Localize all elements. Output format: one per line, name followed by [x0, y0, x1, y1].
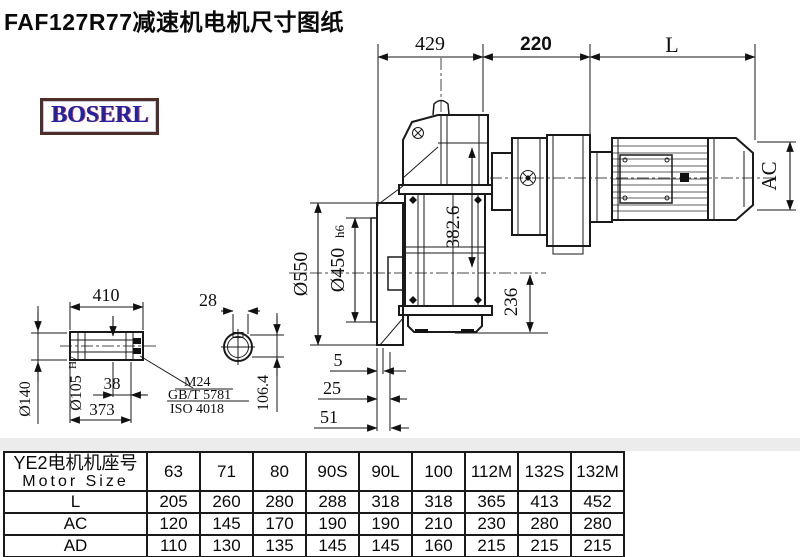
table-cell: 145 [200, 513, 253, 535]
dim-382-label: 382.6 [443, 206, 464, 249]
dim-373-label: 373 [89, 400, 115, 419]
dim-L-label: L [665, 32, 678, 57]
header-line-cn: YE2电机机座号 [5, 453, 146, 473]
brand-logo: BOSERL [40, 98, 159, 135]
dim-140-label: Ø140 [17, 381, 34, 417]
page-title: FAF127R77减速机电机尺寸图纸 [4, 3, 344, 37]
table-cell: 205 [147, 491, 200, 513]
bolt-spec-line3: ISO 4018 [170, 402, 224, 417]
motor-outline [612, 138, 753, 220]
dim-220-label: 220 [520, 34, 552, 55]
dim-450-label: Ø450 [327, 248, 349, 292]
table-cell: 120 [147, 513, 200, 535]
dim-105-label: Ø105 [68, 375, 85, 411]
row-label: AC [4, 513, 147, 535]
header-line-en: Motor Size [5, 473, 146, 490]
flange-dimensions: Ø550 Ø450 h6 [290, 203, 378, 345]
table-cell: 280 [571, 513, 624, 535]
drawing-page: 429 220 L [0, 0, 800, 557]
table-cell: 413 [518, 491, 571, 513]
table-cell: 260 [200, 491, 253, 513]
table-header-cell: 71 [200, 452, 253, 491]
table-cell: 190 [359, 513, 412, 535]
table-cell: 135 [253, 535, 306, 557]
table-cell: 145 [306, 535, 359, 557]
table-cell: 160 [412, 535, 465, 557]
dim-106-label: 106.4 [255, 375, 272, 411]
bolt-spec-line2: GB/T 5781 [168, 388, 231, 403]
table-cell: 145 [359, 535, 412, 557]
dim-5-label: 5 [334, 350, 343, 370]
table-cell: 215 [465, 535, 518, 557]
centerlines [60, 58, 774, 346]
table-cell: 170 [253, 513, 306, 535]
table-header-cell: 80 [253, 452, 306, 491]
table-cell: 215 [571, 535, 624, 557]
dim-410-label: 410 [93, 285, 120, 305]
table-row: L 205 260 280 288 318 318 365 413 452 [4, 491, 624, 513]
input-stage [492, 135, 612, 254]
table-cell: 365 [465, 491, 518, 513]
dim-550-label: Ø550 [290, 252, 312, 296]
table-header-cell: 90L [359, 452, 412, 491]
table-cell: 190 [306, 513, 359, 535]
dim-450-suffix: h6 [332, 225, 347, 239]
table-header-cell: 100 [412, 452, 465, 491]
table-cell: 452 [571, 491, 624, 513]
table-header-row: YE2电机机座号 Motor Size 63 71 80 90S 90L 100… [4, 452, 624, 491]
dim-AC-label: AC [757, 161, 781, 190]
table-cell: 110 [147, 535, 200, 557]
table-header-cell: 132S [518, 452, 571, 491]
motor-size-table: YE2电机机座号 Motor Size 63 71 80 90S 90L 100… [3, 451, 625, 557]
table-header-cell: 132M [571, 452, 624, 491]
divider-band [0, 438, 800, 451]
ac-dimension: AC [757, 142, 796, 210]
table-row: AD 110 130 135 145 145 160 215 215 215 [4, 535, 624, 557]
table-header-cell: 90S [306, 452, 359, 491]
table-cell: 280 [518, 513, 571, 535]
dim-38-label: 38 [104, 374, 121, 393]
dim-28-label: 28 [199, 290, 217, 310]
table-cell: 230 [465, 513, 518, 535]
dim-236-label: 236 [501, 288, 522, 317]
gearbox-side-view [371, 101, 492, 346]
dim-105-sup: H7 [67, 355, 79, 369]
table-header-cell: 63 [147, 452, 200, 491]
table-cell: 318 [412, 491, 465, 513]
top-dimensions: 429 220 L [378, 32, 755, 206]
table-cell: 130 [200, 535, 253, 557]
table-header-cell: YE2电机机座号 Motor Size [4, 452, 147, 491]
brand-logo-text: BOSERL [43, 101, 156, 132]
dim-25-label: 25 [323, 378, 341, 398]
motor-fan-cover [708, 138, 753, 220]
dimension-drawing: 429 220 L [0, 0, 800, 450]
table-cell: 280 [253, 491, 306, 513]
dim-429-label: 429 [415, 33, 445, 55]
table-row: AC 120 145 170 190 190 210 230 280 280 [4, 513, 624, 535]
row-label: AD [4, 535, 147, 557]
face-gap-dimensions: 5 25 51 [314, 348, 409, 431]
table-cell: 318 [359, 491, 412, 513]
dim-51-label: 51 [320, 407, 338, 427]
row-label: L [4, 491, 147, 513]
table-cell: 288 [306, 491, 359, 513]
table-cell: 215 [518, 535, 571, 557]
table-header-cell: 112M [465, 452, 518, 491]
table-cell: 210 [412, 513, 465, 535]
